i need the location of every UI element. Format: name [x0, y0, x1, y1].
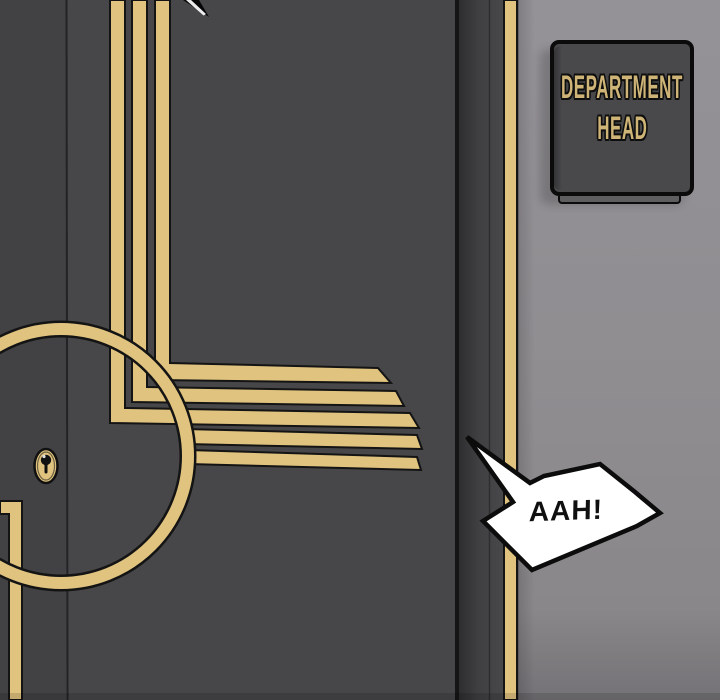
department-head-sign: DEPARTMENT HEAD: [550, 40, 694, 196]
door-seam-line: [67, 0, 68, 700]
keyhole-icon: [35, 449, 58, 483]
comic-panel: DEPARTMENT HEAD AAH!: [0, 0, 720, 700]
sign-left-bevel: [554, 46, 562, 190]
bottom-shade: [0, 693, 720, 700]
sign-text-line2: HEAD: [597, 113, 647, 143]
sign-bottom-face: [558, 196, 681, 204]
wall-edge-shade: [519, 0, 535, 700]
sign-text-line1: DEPARTMENT: [561, 72, 683, 102]
speech-bubble-text: AAH!: [526, 493, 607, 530]
door-edge-line: [455, 0, 459, 700]
door-jamb: [459, 0, 504, 700]
doorframe-gold-trim: [504, 0, 517, 700]
door-main-panel: [0, 0, 457, 700]
